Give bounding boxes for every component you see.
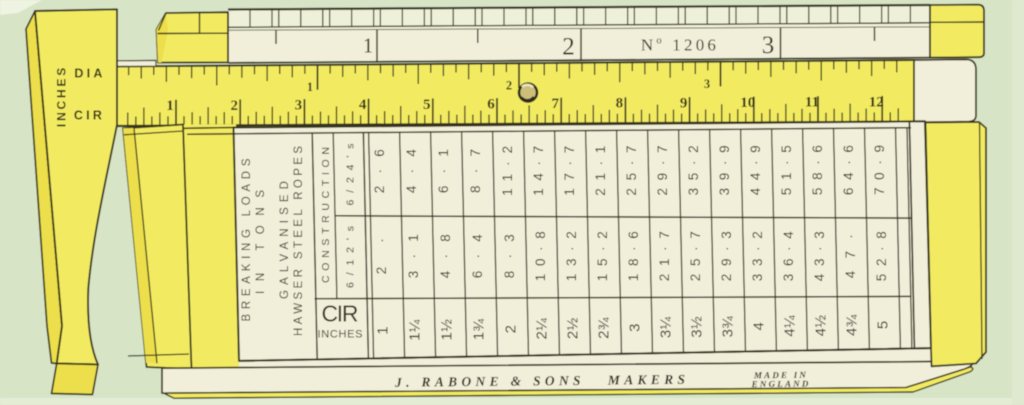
svg-text:CIR: CIR [322, 301, 359, 327]
svg-text:8·7: 8·7 [468, 149, 483, 193]
svg-text:11: 11 [805, 95, 819, 111]
svg-text:DIA: DIA [74, 67, 105, 81]
svg-text:INCHES: INCHES [55, 65, 69, 127]
svg-text:1: 1 [307, 80, 313, 94]
svg-text:12: 12 [869, 94, 884, 110]
svg-text:4·4: 4·4 [404, 149, 419, 193]
svg-text:2: 2 [503, 324, 520, 333]
svg-text:1¼: 1¼ [407, 319, 424, 341]
svg-text:9: 9 [680, 95, 688, 111]
svg-text:5: 5 [423, 97, 431, 113]
svg-text:4½: 4½ [812, 314, 829, 336]
svg-text:3: 3 [295, 98, 303, 114]
svg-text:1: 1 [363, 34, 374, 58]
svg-text:4¾: 4¾ [843, 314, 860, 336]
svg-text:7: 7 [551, 96, 559, 112]
svg-text:3: 3 [762, 32, 775, 59]
svg-text:8: 8 [616, 96, 624, 112]
svg-text:4: 4 [359, 97, 367, 113]
svg-text:10: 10 [740, 95, 755, 111]
svg-text:J. RABONE & SONS MAKERS: J. RABONE & SONS MAKERS [394, 372, 685, 390]
svg-text:3¾: 3¾ [719, 316, 736, 338]
svg-text:2: 2 [506, 79, 512, 93]
svg-text:1: 1 [166, 98, 174, 114]
svg-text:2¼: 2¼ [533, 318, 550, 340]
svg-text:4¼: 4¼ [781, 315, 798, 337]
svg-text:3½: 3½ [688, 316, 705, 338]
svg-text:2½: 2½ [564, 317, 581, 339]
svg-text:1½: 1½ [439, 319, 456, 341]
svg-text:2¾: 2¾ [595, 317, 612, 339]
svg-text:ENGLAND: ENGLAND [751, 378, 811, 389]
svg-text:8·3: 8·3 [502, 234, 517, 278]
svg-text:6: 6 [487, 96, 495, 112]
svg-text:1: 1 [375, 326, 392, 335]
svg-text:6·1: 6·1 [436, 149, 451, 193]
svg-text:3: 3 [626, 323, 643, 332]
svg-text:6·4: 6·4 [470, 234, 485, 278]
svg-text:4: 4 [750, 322, 767, 331]
svg-text:No 1206: No 1206 [641, 35, 719, 54]
svg-text:2: 2 [562, 33, 575, 60]
svg-text:3: 3 [704, 77, 710, 91]
svg-text:CIR: CIR [74, 109, 105, 123]
svg-text:2: 2 [230, 98, 238, 114]
svg-text:3·1: 3·1 [406, 234, 421, 278]
svg-text:4·8: 4·8 [438, 234, 453, 278]
svg-text:INCHES: INCHES [318, 329, 363, 341]
svg-text:2·6: 2·6 [372, 149, 387, 193]
svg-text:5: 5 [874, 320, 891, 329]
svg-text:1¾: 1¾ [471, 318, 488, 340]
svg-text:3¼: 3¼ [657, 316, 674, 338]
